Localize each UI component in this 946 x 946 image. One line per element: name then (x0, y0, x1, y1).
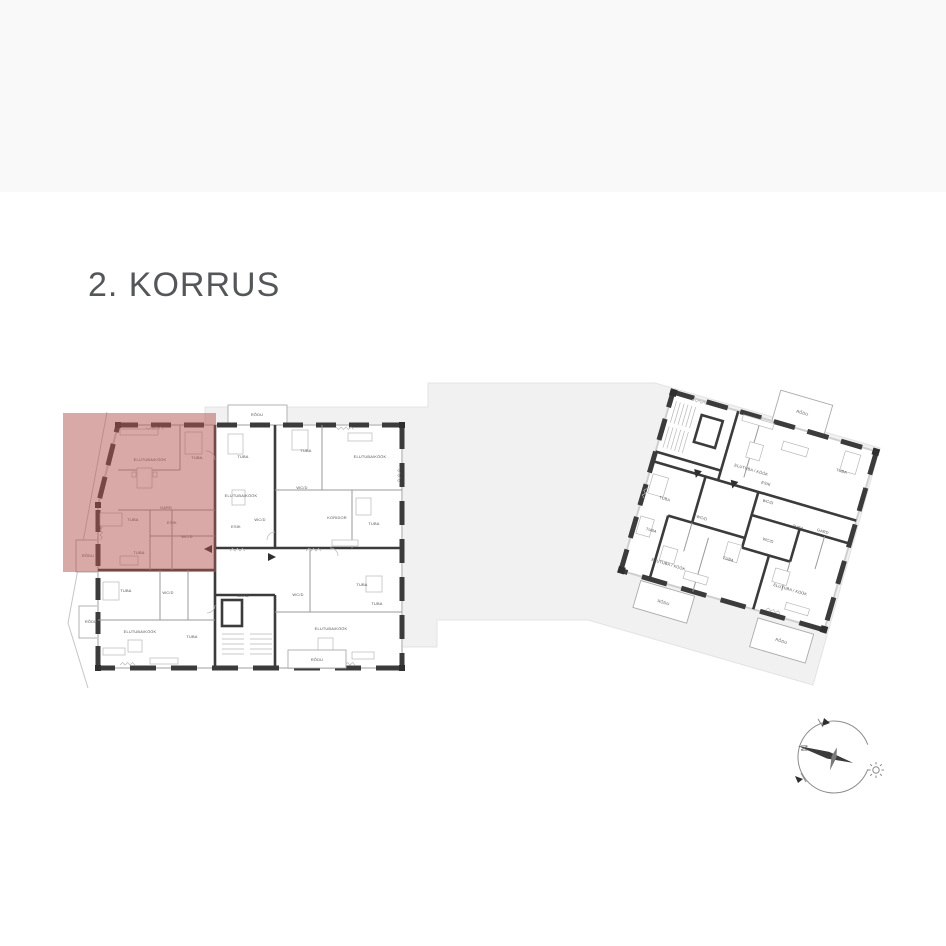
room-label: TUBA (120, 588, 131, 593)
sun-icon (868, 762, 884, 778)
room-label: TUBA (237, 454, 248, 459)
compass-rose-icon: N (794, 718, 884, 793)
room-label: TUBA (371, 601, 382, 606)
room-label: WC/D (292, 592, 303, 597)
room-label: ELUTUBA/KÖÖK (315, 626, 348, 631)
room-label: WC/D (296, 485, 307, 490)
room-label: WC/D (254, 517, 265, 522)
room-label: RÕDU (85, 619, 97, 624)
room-label: ELUTUBA/KÖÖK (124, 629, 157, 634)
room-label: TUBA (368, 521, 379, 526)
site-plan-canvas: RÕDUELUTUBA / KÖÖKTUBAESIKWC/DTUBAWC/DTU… (0, 0, 946, 946)
room-label: TUBA (186, 634, 197, 639)
room-label: RÕDU (311, 657, 323, 662)
room-label: RÕDU (251, 412, 263, 417)
room-label: KORIDOR (327, 515, 347, 520)
room-label: ESIK (231, 524, 241, 529)
room-label: ELUTUBA/KÖÖK (225, 493, 258, 498)
room-label: WC/D (162, 590, 173, 595)
room-label: TUBA (300, 448, 311, 453)
room-label: ELUTUBA/KÖÖK (354, 454, 387, 459)
highlighted-apartment-overlay[interactable] (63, 413, 216, 572)
room-label: TUBA (356, 582, 367, 587)
room-label: GARD (237, 593, 249, 598)
north-label: N (799, 745, 809, 752)
